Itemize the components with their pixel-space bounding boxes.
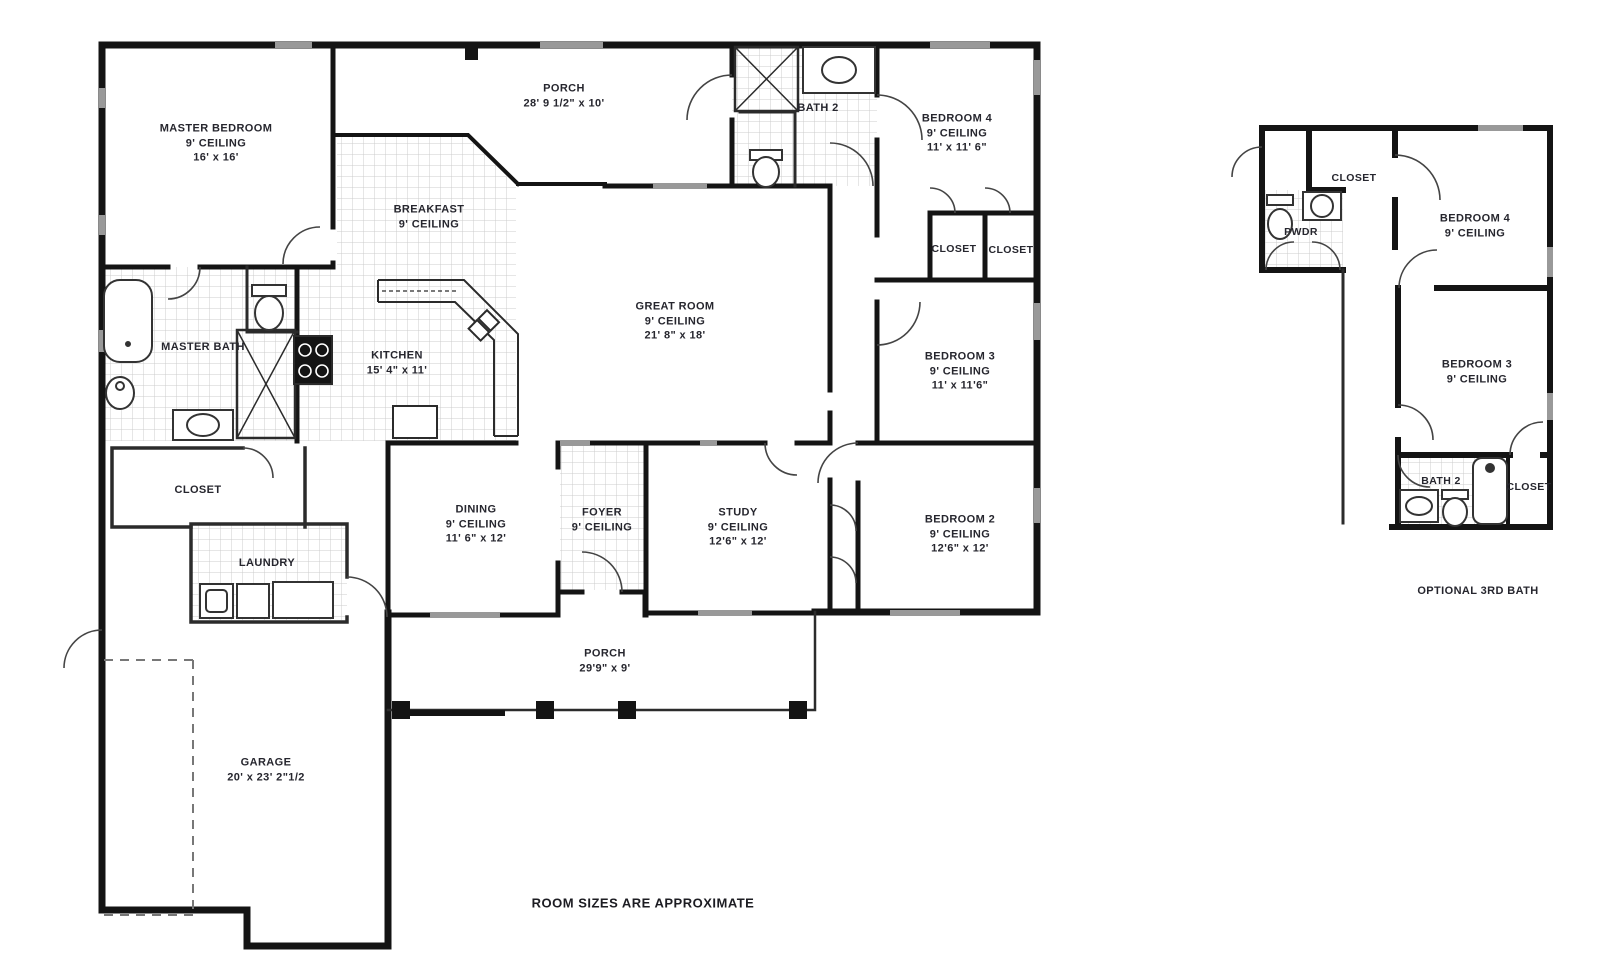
room-label-dining: DINING 9' CEILING 11' 6" x 12' <box>446 502 507 546</box>
room-label-garage: GARAGE 20' x 23' 2"1/2 <box>227 756 305 785</box>
optional-plan-caption: OPTIONAL 3RD BATH <box>1417 585 1538 597</box>
room-label-porch-top: PORCH 28' 9 1/2" x 10' <box>523 82 604 111</box>
room-label-closet-2: CLOSET <box>989 243 1034 258</box>
room-label-master-bath: MASTER BATH <box>161 340 245 355</box>
room-label-laundry: LAUNDRY <box>239 556 295 571</box>
footnote: ROOM SIZES ARE APPROXIMATE <box>532 896 755 911</box>
floor-plan-canvas: MASTER BEDROOM 9' CEILING 16' x 16' PORC… <box>0 0 1600 979</box>
room-label-foyer: FOYER 9' CEILING <box>572 506 632 535</box>
opt-room-label-bath-2: BATH 2 <box>1421 474 1461 489</box>
room-label-bedroom-2: BEDROOM 2 9' CEILING 12'6" x 12' <box>925 512 995 556</box>
opt-room-label-pwdr: PWDR <box>1284 225 1318 240</box>
room-label-breakfast: BREAKFAST 9' CEILING <box>394 203 465 232</box>
room-label-bedroom-4: BEDROOM 4 9' CEILING 11' x 11' 6" <box>922 111 992 155</box>
room-label-great-room: GREAT ROOM 9' CEILING 21' 8" x 18' <box>636 299 715 343</box>
opt-room-label-bedroom-4: BEDROOM 4 9' CEILING <box>1440 212 1510 241</box>
tiled-floors <box>102 45 1508 620</box>
room-label-closet-1: CLOSET <box>932 242 977 257</box>
opt-room-label-closet-bottom: CLOSET <box>1507 480 1552 495</box>
room-label-study: STUDY 9' CEILING 12'6" x 12' <box>708 505 768 549</box>
room-label-master-closet: CLOSET <box>174 483 221 498</box>
room-label-porch-bottom: PORCH 29'9" x 9' <box>579 647 630 676</box>
garage-dashed-outline <box>104 660 193 915</box>
room-label-master-bedroom: MASTER BEDROOM 9' CEILING 16' x 16' <box>160 121 273 165</box>
laundry-appliances <box>200 582 333 618</box>
room-label-kitchen: KITCHEN 15' 4" x 11' <box>367 349 428 378</box>
room-label-bedroom-3: BEDROOM 3 9' CEILING 11' x 11'6" <box>925 349 995 393</box>
opt-room-label-closet-top: CLOSET <box>1332 171 1377 186</box>
room-label-bath-2: BATH 2 <box>797 101 838 116</box>
opt-room-label-bedroom-3: BEDROOM 3 9' CEILING <box>1442 358 1512 387</box>
